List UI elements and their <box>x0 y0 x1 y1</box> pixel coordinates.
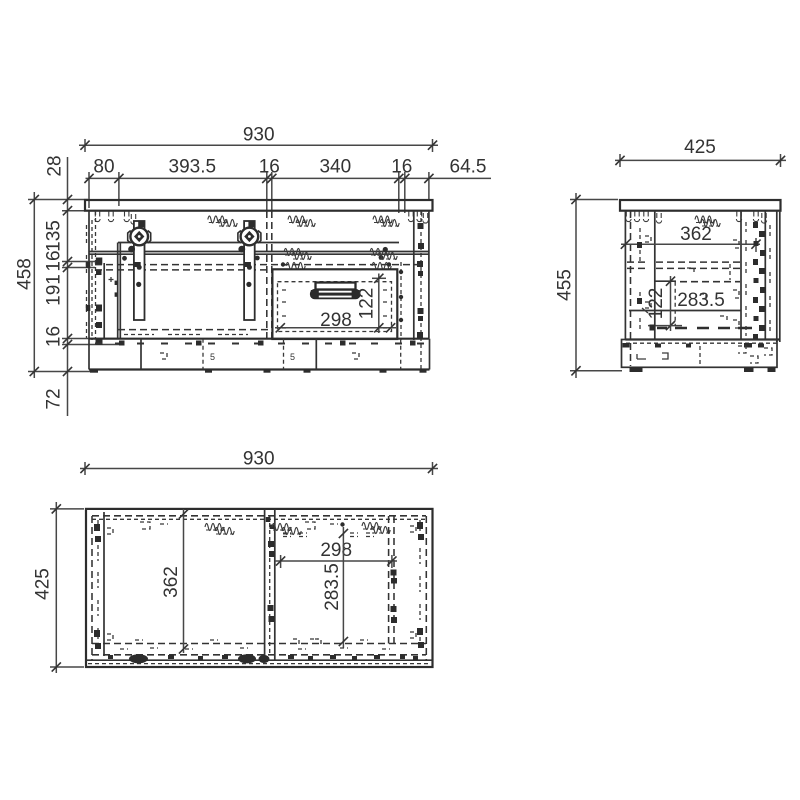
svg-text:64.5: 64.5 <box>450 157 487 178</box>
svg-text:16: 16 <box>44 250 65 271</box>
svg-text:16: 16 <box>44 326 65 347</box>
svg-text:122: 122 <box>356 288 377 320</box>
svg-text:458: 458 <box>15 258 36 290</box>
svg-text:393.5: 393.5 <box>169 157 217 178</box>
svg-text:340: 340 <box>319 157 351 178</box>
svg-text:135: 135 <box>44 220 65 252</box>
svg-text:298: 298 <box>320 540 352 561</box>
svg-text:72: 72 <box>44 388 65 409</box>
svg-text:122: 122 <box>646 288 667 320</box>
svg-text:16: 16 <box>259 157 280 178</box>
svg-text:362: 362 <box>680 224 712 245</box>
svg-text:283.5: 283.5 <box>322 563 343 611</box>
svg-text:5: 5 <box>210 352 215 362</box>
svg-text:5: 5 <box>290 352 295 362</box>
svg-text:425: 425 <box>33 568 54 600</box>
svg-text:283.5: 283.5 <box>677 290 725 311</box>
svg-text:191: 191 <box>44 274 65 306</box>
svg-text:425: 425 <box>684 137 716 158</box>
svg-text:28: 28 <box>45 155 66 176</box>
svg-text:298: 298 <box>320 310 352 331</box>
svg-text:80: 80 <box>93 157 114 178</box>
svg-text:930: 930 <box>243 449 275 470</box>
svg-text:362: 362 <box>161 566 182 598</box>
svg-text:455: 455 <box>555 269 576 301</box>
svg-text:16: 16 <box>391 157 412 178</box>
svg-text:930: 930 <box>243 125 275 146</box>
